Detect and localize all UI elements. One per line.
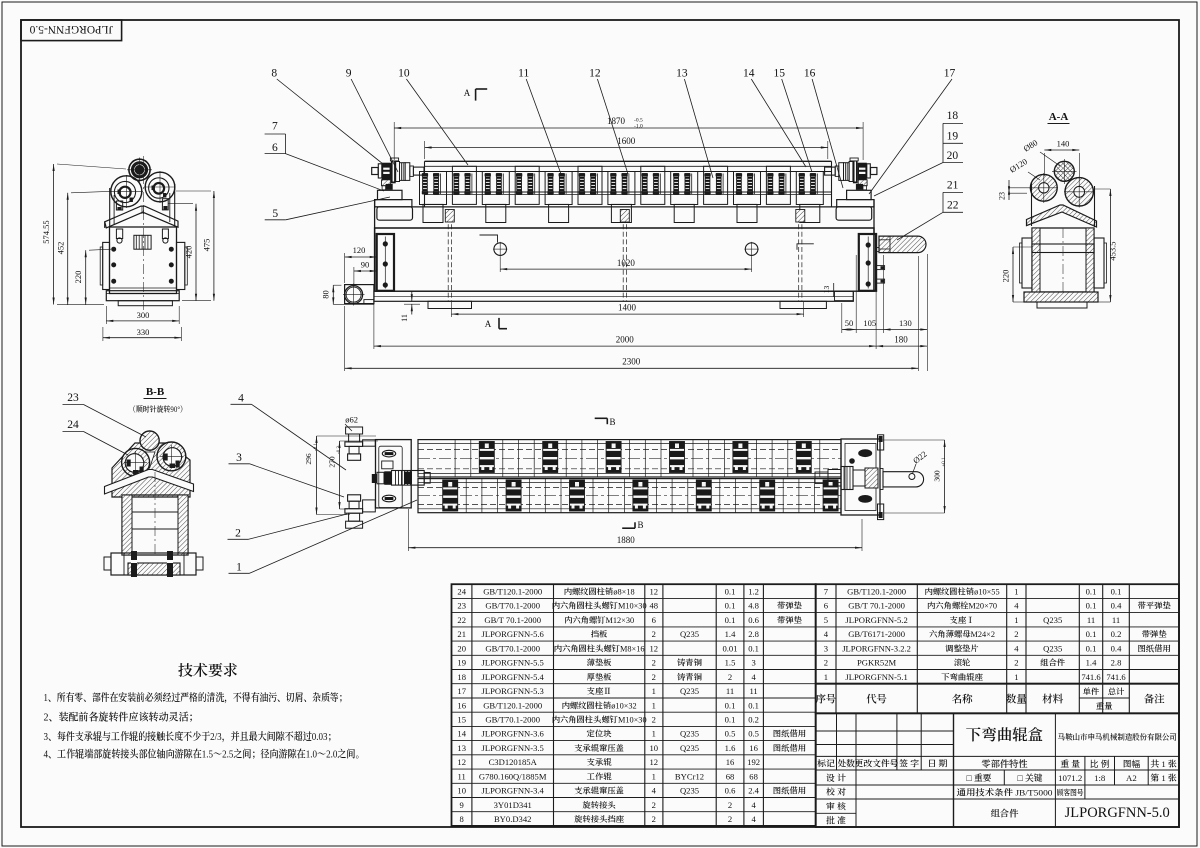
svg-text:13: 13 xyxy=(457,743,466,753)
svg-text:453.5: 453.5 xyxy=(1108,241,1118,260)
svg-text:0.4: 0.4 xyxy=(1111,643,1122,653)
svg-text:0.1: 0.1 xyxy=(725,615,736,625)
svg-text:13: 13 xyxy=(676,68,688,80)
svg-text:Q235: Q235 xyxy=(680,743,699,753)
svg-text:8: 8 xyxy=(271,68,277,80)
svg-text:技术要求: 技术要求 xyxy=(178,660,238,681)
svg-text:1: 1 xyxy=(652,686,656,696)
svg-text:48: 48 xyxy=(650,601,659,611)
svg-text:574.55: 574.55 xyxy=(41,220,51,243)
svg-text:顾客图号: 顾客图号 xyxy=(1057,787,1084,798)
svg-text:23: 23 xyxy=(457,601,466,611)
svg-text:1071.2: 1071.2 xyxy=(1058,773,1082,783)
svg-text:4: 4 xyxy=(652,786,657,796)
svg-text:下弯曲辊座: 下弯曲辊座 xyxy=(940,671,983,683)
svg-text:15: 15 xyxy=(457,715,466,725)
svg-text:支座Ⅱ: 支座Ⅱ xyxy=(587,685,612,697)
svg-text:支承辊窜压盖: 支承辊窜压盖 xyxy=(574,785,624,797)
svg-text:JLPORGFNN-5.1: JLPORGFNN-5.1 xyxy=(845,672,907,682)
svg-text:GB/T120.1-2000: GB/T120.1-2000 xyxy=(483,587,542,597)
svg-text:2.8: 2.8 xyxy=(748,629,759,639)
svg-text:300: 300 xyxy=(933,470,942,482)
svg-text:内螺纹圆柱销ø8×18: 内螺纹圆柱销ø8×18 xyxy=(564,586,635,598)
svg-text:6: 6 xyxy=(652,615,657,625)
svg-text:1.4: 1.4 xyxy=(1086,658,1097,668)
svg-text:六角薄螺母M24×2: 六角薄螺母M24×2 xyxy=(929,628,995,640)
svg-text:21: 21 xyxy=(947,180,959,192)
svg-text:0.6: 0.6 xyxy=(748,615,759,625)
svg-text:120: 120 xyxy=(353,245,366,255)
svg-text:带弹垫: 带弹垫 xyxy=(777,600,803,612)
svg-text:4: 4 xyxy=(1014,643,1019,653)
svg-text:6: 6 xyxy=(272,142,278,154)
svg-text:Q235: Q235 xyxy=(1043,643,1062,653)
svg-text:标记: 标记 xyxy=(816,756,835,769)
svg-text:0.1: 0.1 xyxy=(1086,643,1097,653)
svg-text:15: 15 xyxy=(773,68,785,80)
svg-text:4、工作辊端部旋转接头部位轴向游隙在1.5～2.5之间；径向: 4、工作辊端部旋转接头部位轴向游隙在1.5～2.5之间；径向游隙在1.0～2.0… xyxy=(44,747,365,762)
svg-text:9: 9 xyxy=(346,68,352,80)
svg-text:处数: 处数 xyxy=(837,756,855,769)
svg-text:0.1: 0.1 xyxy=(725,601,736,611)
svg-text:BYCr12: BYCr12 xyxy=(675,771,704,781)
svg-text:B: B xyxy=(637,520,643,530)
svg-text:192: 192 xyxy=(747,757,760,767)
svg-text:22: 22 xyxy=(947,200,959,212)
svg-text:2300: 2300 xyxy=(622,357,641,367)
svg-text:材料: 材料 xyxy=(1042,692,1064,707)
svg-text:2: 2 xyxy=(652,658,656,668)
svg-text:JLPORGFNN-5.2: JLPORGFNN-5.2 xyxy=(845,615,907,625)
svg-text:3、每件支承辊与工作辊的接触长度不少于2/3，并且最大间隙不: 3、每件支承辊与工作辊的接触长度不少于2/3，并且最大间隙不超过0.03； xyxy=(44,729,337,744)
svg-text:130: 130 xyxy=(899,318,912,328)
svg-text:220: 220 xyxy=(73,271,83,284)
svg-text:内六角圆柱头螺钉M10×30: 内六角圆柱头螺钉M10×30 xyxy=(552,600,647,612)
svg-text:Q235: Q235 xyxy=(680,729,699,739)
svg-text:支承辊窜压盖: 支承辊窜压盖 xyxy=(574,742,624,754)
svg-text:-1.0: -1.0 xyxy=(634,124,643,130)
svg-text:3: 3 xyxy=(824,643,828,653)
svg-text:2: 2 xyxy=(652,800,656,810)
svg-text:JLPORGFNN-5.0: JLPORGFNN-5.0 xyxy=(1065,805,1170,821)
svg-text:1: 1 xyxy=(1014,615,1018,625)
svg-text:14: 14 xyxy=(743,68,755,80)
svg-text:420: 420 xyxy=(184,246,194,259)
svg-text:17: 17 xyxy=(457,686,466,696)
svg-text:5: 5 xyxy=(824,615,828,625)
svg-text:11: 11 xyxy=(400,314,409,322)
svg-text:JLPORGFNN-3.5: JLPORGFNN-3.5 xyxy=(482,743,544,753)
svg-text:23: 23 xyxy=(67,392,79,404)
svg-text:第 1 张: 第 1 张 xyxy=(1150,771,1177,784)
svg-text:2: 2 xyxy=(652,814,656,824)
svg-text:批 准: 批 准 xyxy=(826,814,847,827)
svg-text:3: 3 xyxy=(751,658,755,668)
svg-text:0.1: 0.1 xyxy=(725,587,736,597)
svg-text:重量: 重量 xyxy=(1095,700,1113,712)
svg-text:内螺纹圆柱销ø10×55: 内螺纹圆柱销ø10×55 xyxy=(924,586,999,598)
svg-text:JLPORGFNN-5.5: JLPORGFNN-5.5 xyxy=(482,658,544,668)
svg-text:A-A: A-A xyxy=(1049,111,1069,123)
svg-text:设 计: 设 计 xyxy=(826,771,847,784)
svg-text:B-B: B-B xyxy=(146,386,165,398)
svg-text:4: 4 xyxy=(751,800,756,810)
svg-text:带弹垫: 带弹垫 xyxy=(777,614,803,626)
svg-text:厚垫板: 厚垫板 xyxy=(587,671,612,683)
svg-text:JLPORGFNN-5.6: JLPORGFNN-5.6 xyxy=(482,629,545,639)
svg-text:0.1: 0.1 xyxy=(1086,587,1097,597)
svg-text:2: 2 xyxy=(728,672,732,682)
svg-text:GB/T70.1-2000: GB/T70.1-2000 xyxy=(485,601,540,611)
svg-text:1: 1 xyxy=(652,700,656,710)
svg-text:4: 4 xyxy=(238,393,244,405)
svg-text:20: 20 xyxy=(947,150,959,162)
svg-text:组合件: 组合件 xyxy=(1040,657,1066,669)
svg-text:2、装配前各旋转件应该转动灵活；: 2、装配前各旋转件应该转动灵活； xyxy=(44,710,199,725)
svg-text:薄垫板: 薄垫板 xyxy=(587,657,612,669)
svg-text:105: 105 xyxy=(863,318,876,328)
svg-text:Q235: Q235 xyxy=(680,629,699,639)
svg-text:0.1: 0.1 xyxy=(1086,629,1097,639)
svg-text:2: 2 xyxy=(728,800,732,810)
svg-text:24: 24 xyxy=(67,419,79,431)
svg-text:2.8: 2.8 xyxy=(1111,658,1122,668)
svg-text:2000: 2000 xyxy=(616,334,635,344)
svg-text:2: 2 xyxy=(652,715,656,725)
svg-text:741.6: 741.6 xyxy=(1106,672,1126,682)
svg-text:旋转接头挡座: 旋转接头挡座 xyxy=(573,813,624,825)
svg-text:4: 4 xyxy=(751,814,756,824)
svg-text:1020: 1020 xyxy=(617,258,636,268)
svg-text:数量: 数量 xyxy=(1005,692,1028,707)
svg-text:1400: 1400 xyxy=(618,303,637,313)
svg-text:80: 80 xyxy=(321,290,331,299)
svg-text:GB/T70.1-2000: GB/T70.1-2000 xyxy=(485,715,540,725)
svg-text:11: 11 xyxy=(518,68,529,80)
svg-text:工作辊: 工作辊 xyxy=(587,770,613,782)
svg-text:共 1 张: 共 1 张 xyxy=(1149,757,1177,770)
svg-text:GB/T120.1-2000: GB/T120.1-2000 xyxy=(847,587,906,597)
svg-text:1.2: 1.2 xyxy=(748,587,759,597)
svg-text:4: 4 xyxy=(824,629,829,639)
svg-text:18: 18 xyxy=(457,672,466,682)
svg-text:23: 23 xyxy=(998,192,1007,200)
svg-text:16: 16 xyxy=(804,68,816,80)
svg-text:序号: 序号 xyxy=(815,692,836,707)
svg-text:带弹垫: 带弹垫 xyxy=(1142,628,1168,640)
svg-text:16: 16 xyxy=(457,700,466,710)
svg-text:0.1: 0.1 xyxy=(725,700,736,710)
svg-text:180: 180 xyxy=(894,334,908,344)
svg-text:9: 9 xyxy=(460,800,464,810)
svg-text:图纸借用: 图纸借用 xyxy=(1138,642,1171,654)
svg-text:GB/T 70.1-2000: GB/T 70.1-2000 xyxy=(848,601,905,611)
svg-text:A: A xyxy=(464,88,471,98)
svg-text:+0.1: +0.1 xyxy=(942,457,947,467)
svg-text:内六角圆柱头螺钉M10×30: 内六角圆柱头螺钉M10×30 xyxy=(552,714,647,726)
svg-text:0.5: 0.5 xyxy=(748,729,759,739)
svg-text:图纸借用: 图纸借用 xyxy=(773,785,806,797)
svg-text:12: 12 xyxy=(650,587,659,597)
svg-text:24: 24 xyxy=(457,587,466,597)
svg-text:JLPORGFNN-3.6: JLPORGFNN-3.6 xyxy=(482,729,545,739)
svg-text:1.4: 1.4 xyxy=(725,629,736,639)
svg-text:代号: 代号 xyxy=(866,692,887,707)
svg-text:旋转接头: 旋转接头 xyxy=(581,799,615,811)
svg-text:1: 1 xyxy=(236,562,242,574)
svg-text:（顺时针旋转90°）: （顺时针旋转90°） xyxy=(129,404,187,415)
svg-text:12: 12 xyxy=(457,757,466,767)
svg-text:0.01: 0.01 xyxy=(722,643,737,653)
svg-text:2: 2 xyxy=(652,629,656,639)
svg-text:14: 14 xyxy=(457,729,466,739)
svg-text:ø62: ø62 xyxy=(345,414,358,424)
svg-text:12: 12 xyxy=(650,757,659,767)
svg-text:90: 90 xyxy=(361,259,370,269)
svg-text:18: 18 xyxy=(947,110,959,122)
svg-text:JLPORGFNN-5.4: JLPORGFNN-5.4 xyxy=(482,672,545,682)
svg-text:图幅: 图幅 xyxy=(1123,757,1141,770)
svg-text:0.2: 0.2 xyxy=(748,715,759,725)
svg-text:2: 2 xyxy=(1014,658,1018,668)
svg-text:1: 1 xyxy=(652,729,656,739)
svg-text:审 核: 审 核 xyxy=(826,799,846,812)
svg-text:0.1: 0.1 xyxy=(1086,601,1097,611)
svg-text:300: 300 xyxy=(137,310,150,320)
svg-text:总计: 总计 xyxy=(1108,685,1125,697)
svg-text:内螺纹圆柱销ø10×32: 内螺纹圆柱销ø10×32 xyxy=(561,699,636,711)
svg-text:452: 452 xyxy=(55,242,65,255)
svg-text:更改文件号: 更改文件号 xyxy=(855,756,899,769)
svg-text:内六角螺栓M20×70: 内六角螺栓M20×70 xyxy=(927,600,997,612)
svg-text:内六角圆柱头螺钉M8×16: 内六角圆柱头螺钉M8×16 xyxy=(554,642,645,654)
svg-text:50: 50 xyxy=(845,318,854,328)
svg-text:校 对: 校 对 xyxy=(826,785,846,798)
svg-text:PGKR52M: PGKR52M xyxy=(857,658,897,668)
svg-text:0.2: 0.2 xyxy=(1111,629,1122,639)
svg-text:10: 10 xyxy=(398,68,410,80)
svg-text:0.1: 0.1 xyxy=(748,700,759,710)
svg-text:B: B xyxy=(609,417,615,427)
svg-text:马鞍山市申马机械制造股份有限公司: 马鞍山市申马机械制造股份有限公司 xyxy=(1058,732,1177,743)
svg-text:10: 10 xyxy=(650,743,659,753)
svg-text:11: 11 xyxy=(1087,615,1095,625)
svg-text:A: A xyxy=(485,319,492,329)
svg-text:0.6: 0.6 xyxy=(725,786,736,796)
svg-text:□ 关键: □ 关键 xyxy=(1017,771,1042,784)
svg-text:名称: 名称 xyxy=(952,692,973,707)
svg-text:4: 4 xyxy=(1014,601,1019,611)
svg-text:7: 7 xyxy=(824,587,829,597)
svg-text:20: 20 xyxy=(457,643,466,653)
svg-text:7: 7 xyxy=(272,120,278,132)
svg-text:1: 1 xyxy=(1014,587,1018,597)
svg-text:68: 68 xyxy=(726,771,735,781)
svg-text:铸青铜: 铸青铜 xyxy=(677,671,703,683)
svg-text:8: 8 xyxy=(460,814,464,824)
svg-text:1、所有零、部件在安装前必须经过严格的清洗，不得有油污、切屑: 1、所有零、部件在安装前必须经过严格的清洗，不得有油污、切屑、杂质等； xyxy=(44,690,348,705)
svg-text:22: 22 xyxy=(457,615,466,625)
svg-text:1:8: 1:8 xyxy=(1094,773,1106,783)
svg-text:330: 330 xyxy=(137,327,150,337)
svg-text:铸青铜: 铸青铜 xyxy=(677,657,703,669)
svg-text:签 字: 签 字 xyxy=(899,756,919,769)
svg-text:GB/T70.1-2000: GB/T70.1-2000 xyxy=(485,643,540,653)
svg-text:296: 296 xyxy=(304,453,313,465)
svg-text:0.1: 0.1 xyxy=(725,715,736,725)
svg-text:下弯曲辊盒: 下弯曲辊盒 xyxy=(966,723,1044,745)
svg-text:□ 重要: □ 重要 xyxy=(966,771,991,784)
svg-text:0.4: 0.4 xyxy=(1111,601,1122,611)
svg-text:2: 2 xyxy=(824,658,828,668)
svg-text:G780.160Q/1885M: G780.160Q/1885M xyxy=(479,771,547,781)
svg-text:挡板: 挡板 xyxy=(591,628,608,640)
svg-text:1: 1 xyxy=(1014,672,1018,682)
svg-text:GB/T 70.1-2000: GB/T 70.1-2000 xyxy=(484,615,541,625)
svg-text:1.6: 1.6 xyxy=(725,743,736,753)
svg-text:日 期: 日 期 xyxy=(928,756,948,769)
svg-text:11: 11 xyxy=(1112,615,1120,625)
svg-text:19: 19 xyxy=(457,658,466,668)
svg-text:68: 68 xyxy=(749,771,758,781)
svg-text:BY0.D342: BY0.D342 xyxy=(494,814,531,824)
svg-text:2: 2 xyxy=(1014,629,1018,639)
svg-text:比 例: 比 例 xyxy=(1090,757,1110,770)
svg-text:GB/T6171-2000: GB/T6171-2000 xyxy=(848,629,905,639)
svg-text:1: 1 xyxy=(824,672,828,682)
svg-text:4: 4 xyxy=(751,672,756,682)
svg-text:10: 10 xyxy=(457,786,466,796)
svg-text:140: 140 xyxy=(1057,138,1070,148)
svg-text:重 量: 重 量 xyxy=(1060,757,1080,770)
svg-text:12: 12 xyxy=(650,643,659,653)
svg-text:1: 1 xyxy=(652,771,656,781)
svg-text:1600: 1600 xyxy=(617,136,636,146)
svg-text:内六角螺钉M12×30: 内六角螺钉M12×30 xyxy=(564,614,634,626)
svg-text:4.8: 4.8 xyxy=(748,601,759,611)
svg-text:GB/T120.1-2000: GB/T120.1-2000 xyxy=(483,700,542,710)
svg-text:JLPORGFNN-3.2.2: JLPORGFNN-3.2.2 xyxy=(842,643,911,653)
svg-text:5: 5 xyxy=(272,208,278,220)
svg-text:组合件: 组合件 xyxy=(991,806,1019,820)
svg-text:2: 2 xyxy=(728,814,732,824)
svg-text:支座Ⅰ: 支座Ⅰ xyxy=(950,614,975,626)
svg-text:2.4: 2.4 xyxy=(748,786,759,796)
svg-text:16: 16 xyxy=(726,757,735,767)
svg-text:220: 220 xyxy=(1000,270,1010,283)
svg-text:C3D120185A: C3D120185A xyxy=(489,757,538,767)
svg-text:调整垫片: 调整垫片 xyxy=(945,642,978,654)
svg-text:通用技术条件 JB/T5000: 通用技术条件 JB/T5000 xyxy=(955,785,1053,798)
svg-text:图纸借用: 图纸借用 xyxy=(773,728,806,740)
svg-text:Q235: Q235 xyxy=(680,686,699,696)
svg-text:16: 16 xyxy=(749,743,758,753)
svg-text:0.5: 0.5 xyxy=(725,729,736,739)
svg-text:-0.2: -0.2 xyxy=(337,446,342,454)
svg-text:单件: 单件 xyxy=(1082,685,1100,697)
svg-text:滚轮: 滚轮 xyxy=(954,657,971,669)
svg-text:3: 3 xyxy=(236,452,242,464)
svg-text:1.5: 1.5 xyxy=(725,658,736,668)
svg-text:JLPORGFNN-5.0: JLPORGFNN-5.0 xyxy=(29,23,113,35)
svg-text:11: 11 xyxy=(749,686,757,696)
svg-text:2: 2 xyxy=(235,528,241,540)
svg-text:6: 6 xyxy=(824,601,829,611)
svg-text:Q235: Q235 xyxy=(1043,615,1062,625)
svg-text:带平弹垫: 带平弹垫 xyxy=(1138,600,1172,612)
svg-text:0.1: 0.1 xyxy=(748,643,759,653)
svg-text:1880: 1880 xyxy=(617,535,636,545)
svg-text:支承辊: 支承辊 xyxy=(587,756,613,768)
svg-text:JLPORGFNN-3.4: JLPORGFNN-3.4 xyxy=(482,786,545,796)
svg-text:12: 12 xyxy=(589,68,601,80)
svg-text:Q235: Q235 xyxy=(680,786,699,796)
svg-text:475: 475 xyxy=(201,239,211,252)
svg-text:11: 11 xyxy=(726,686,734,696)
svg-text:定位块: 定位块 xyxy=(587,728,613,740)
svg-text:21: 21 xyxy=(457,629,466,639)
svg-text:2: 2 xyxy=(652,672,656,682)
svg-text:17: 17 xyxy=(944,68,956,80)
svg-text:零部件特性: 零部件特性 xyxy=(982,756,1029,770)
svg-text:A2: A2 xyxy=(1126,773,1137,783)
svg-text:JLPORGFNN-5.3: JLPORGFNN-5.3 xyxy=(482,686,544,696)
svg-text:11: 11 xyxy=(458,771,466,781)
svg-text:0.1: 0.1 xyxy=(1111,587,1122,597)
svg-text:3Y01D341: 3Y01D341 xyxy=(494,800,532,810)
svg-text:备注: 备注 xyxy=(1144,692,1166,707)
svg-text:19: 19 xyxy=(947,131,959,143)
svg-text:741.6: 741.6 xyxy=(1081,672,1101,682)
svg-text:13: 13 xyxy=(822,286,831,294)
svg-text:图纸借用: 图纸借用 xyxy=(773,742,806,754)
